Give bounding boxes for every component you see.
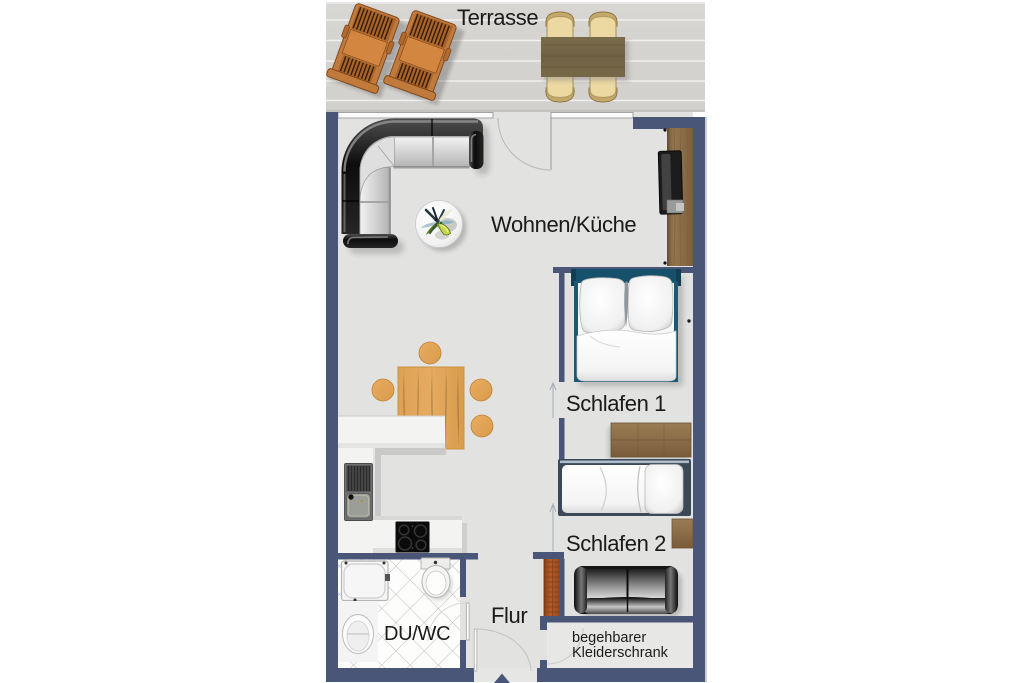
svg-text:Kleiderschrank: Kleiderschrank (572, 645, 669, 661)
svg-text:begehbarer: begehbarer (572, 630, 646, 646)
svg-text:Schlafen 1: Schlafen 1 (566, 391, 666, 416)
svg-text:DU/WC: DU/WC (384, 623, 450, 645)
svg-text:Flur: Flur (491, 603, 527, 628)
svg-text:Schlafen 2: Schlafen 2 (566, 531, 666, 556)
svg-text:Wohnen/Küche: Wohnen/Küche (491, 212, 636, 237)
svg-text:Terrasse: Terrasse (457, 5, 538, 30)
